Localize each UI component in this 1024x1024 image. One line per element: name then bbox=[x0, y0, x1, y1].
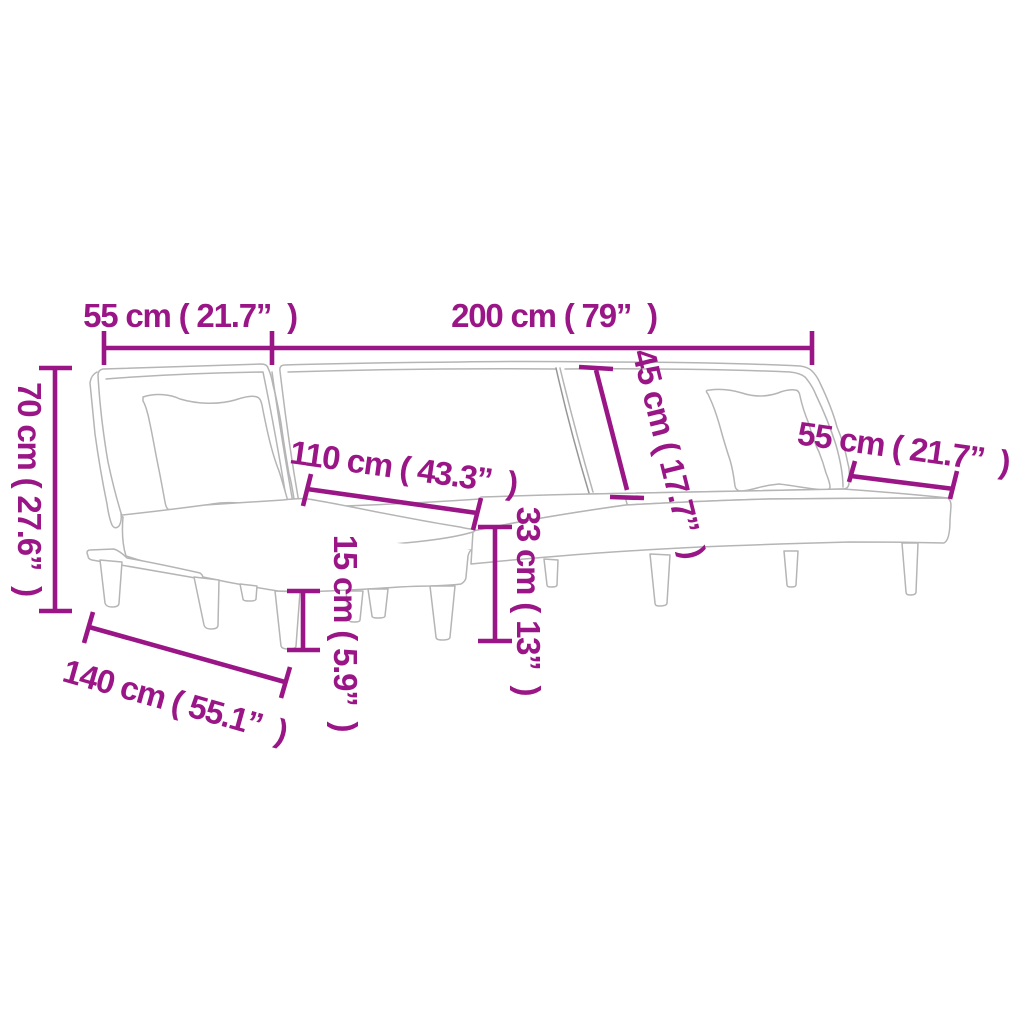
svg-text:70 cm ( 27.6” ): 70 cm ( 27.6” ) bbox=[11, 382, 48, 596]
svg-text:55 cm ( 21.7” ): 55 cm ( 21.7” ) bbox=[83, 297, 297, 334]
svg-text:200 cm ( 79” ): 200 cm ( 79” ) bbox=[451, 297, 657, 334]
svg-text:15 cm ( 5.9” ): 15 cm ( 5.9” ) bbox=[327, 535, 364, 732]
svg-text:33 cm ( 13” ): 33 cm ( 13” ) bbox=[510, 507, 547, 696]
